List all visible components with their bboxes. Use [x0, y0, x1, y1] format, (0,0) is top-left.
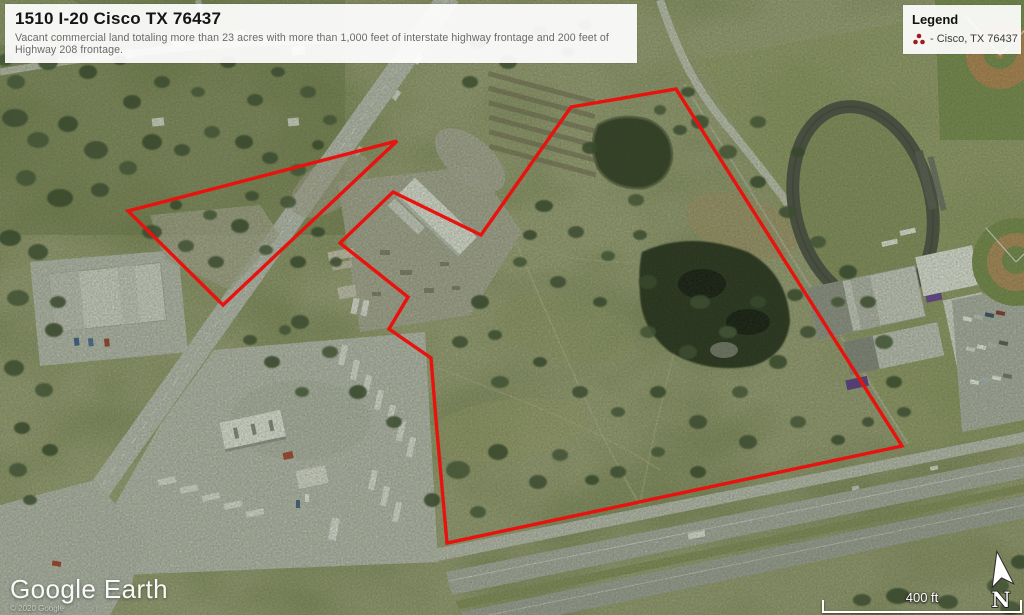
satellite-map[interactable]	[0, 0, 1024, 615]
google-earth-logo: Google Earth	[10, 574, 168, 604]
legend-item: - Cisco, TX 76437	[912, 33, 1012, 45]
north-compass: N	[980, 549, 1022, 613]
north-arrow-icon: N	[980, 549, 1022, 613]
listing-title: 1510 I-20 Cisco TX 76437	[15, 9, 627, 29]
copyright-text: © 2020 Google	[10, 605, 168, 613]
north-label: N	[991, 587, 1010, 612]
google-earth-view: 1510 I-20 Cisco TX 76437 Vacant commerci…	[0, 0, 1024, 615]
legend-title: Legend	[912, 12, 1012, 27]
listing-banner: 1510 I-20 Cisco TX 76437 Vacant commerci…	[5, 4, 637, 63]
google-earth-watermark: Google Earth © 2020 Google	[10, 576, 168, 613]
listing-description: Vacant commercial land totaling more tha…	[15, 32, 627, 56]
terrain-texture	[0, 0, 1024, 615]
place-marker-icon	[912, 33, 926, 45]
legend-panel: Legend - Cisco, TX 76437	[903, 5, 1021, 54]
legend-item-label: - Cisco, TX 76437	[930, 33, 1018, 45]
